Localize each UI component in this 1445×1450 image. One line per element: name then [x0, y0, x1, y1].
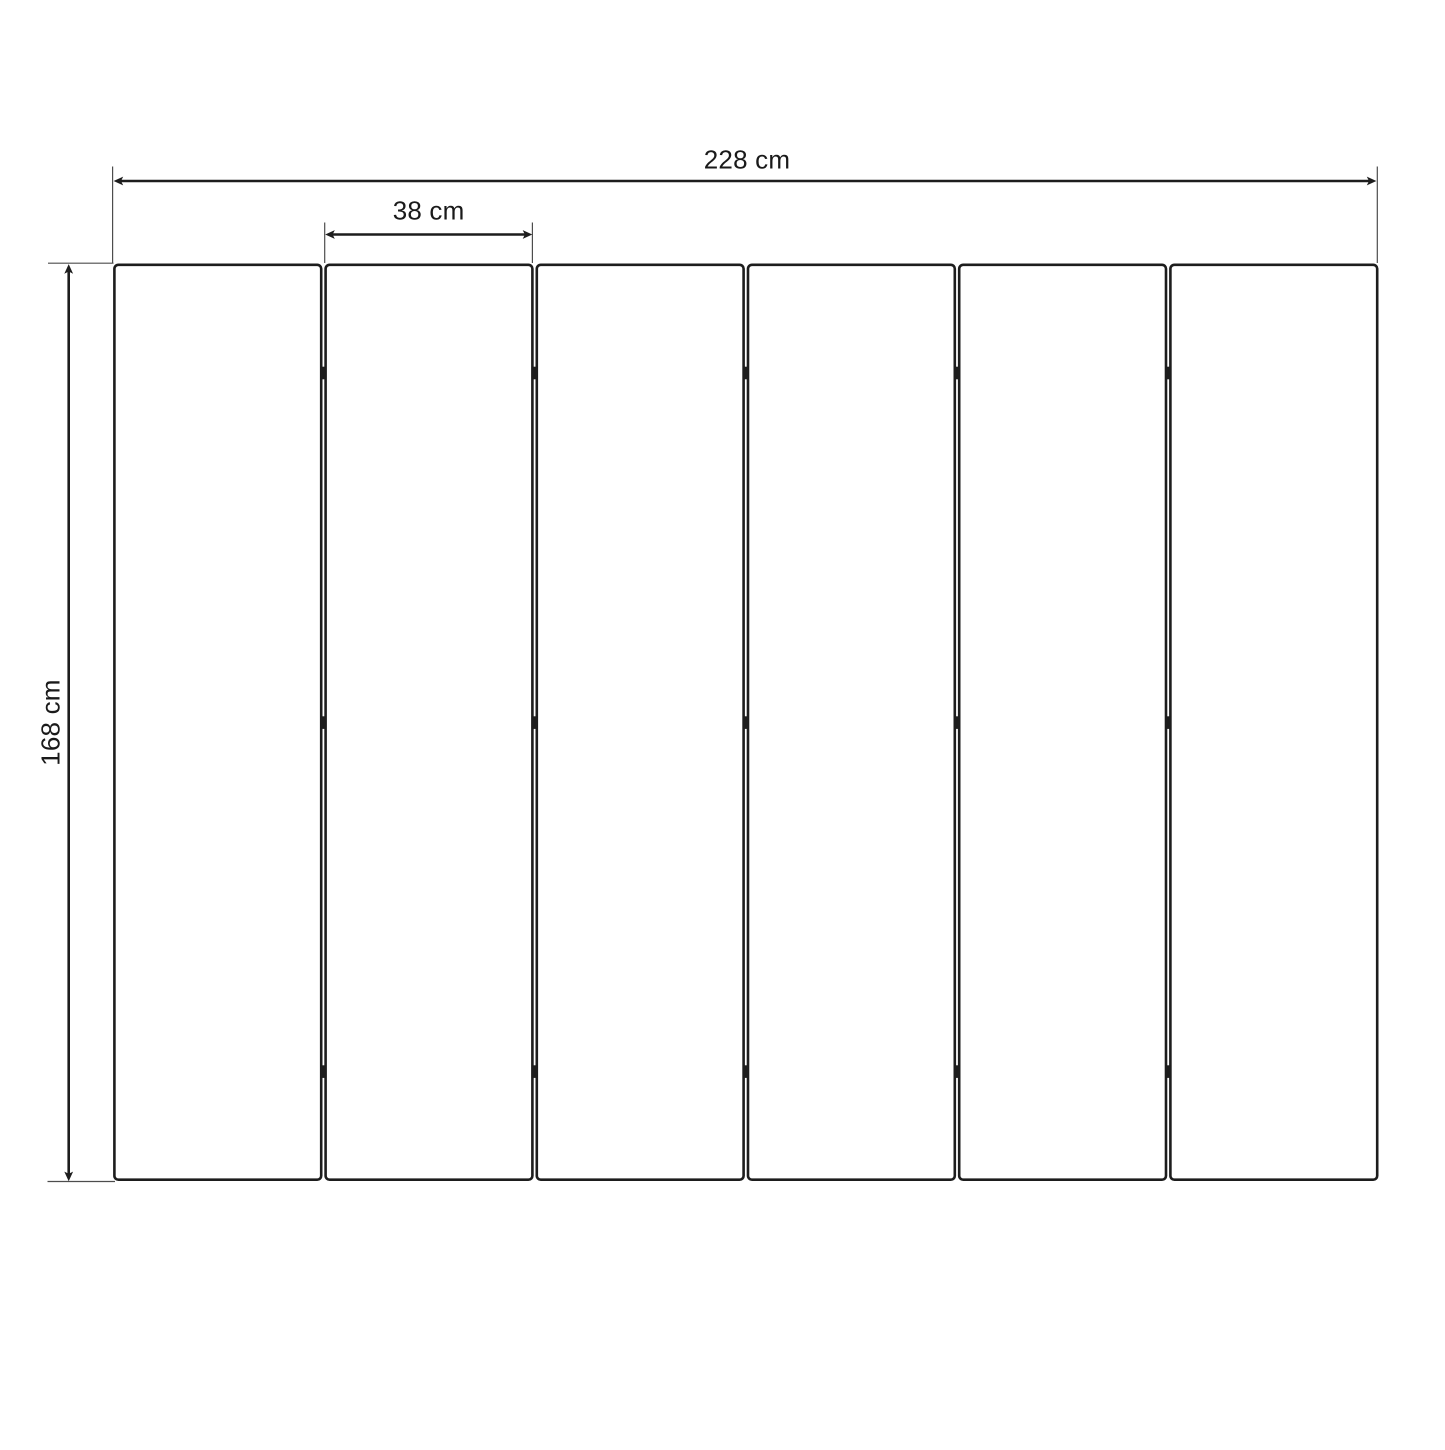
svg-text:38 cm: 38 cm — [393, 196, 465, 226]
svg-text:168 cm: 168 cm — [35, 679, 65, 765]
svg-text:228 cm: 228 cm — [704, 145, 790, 175]
